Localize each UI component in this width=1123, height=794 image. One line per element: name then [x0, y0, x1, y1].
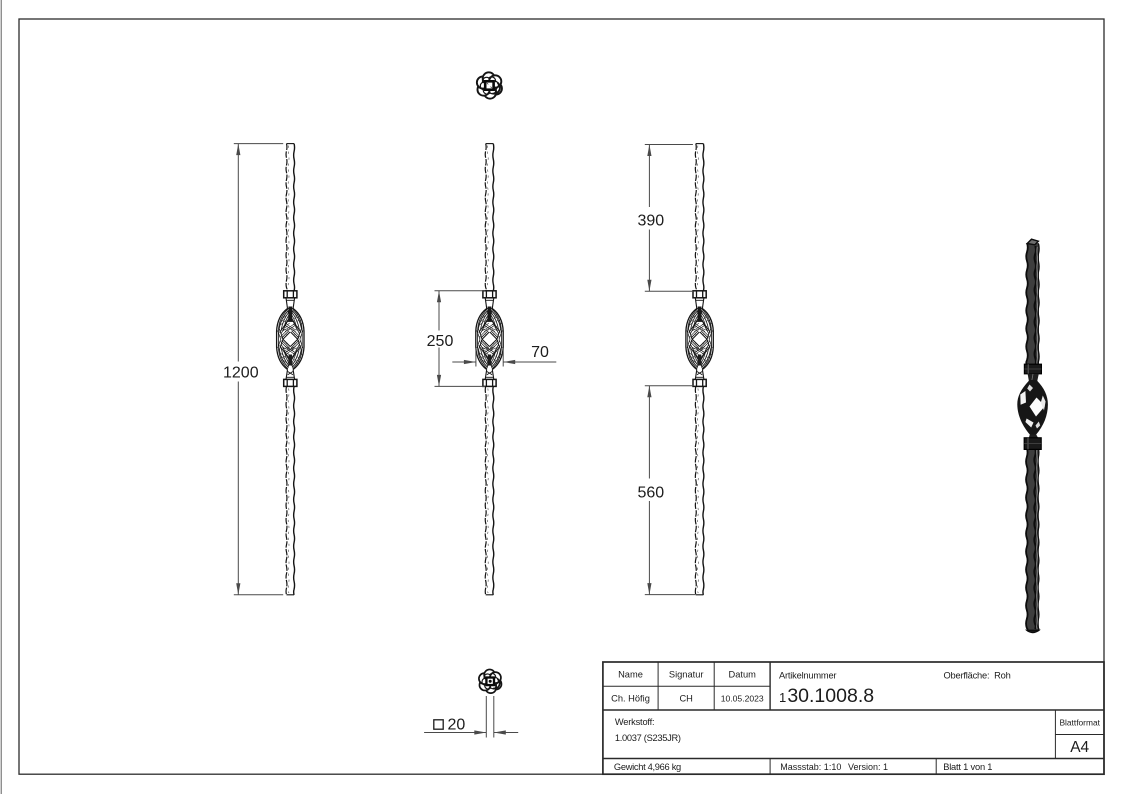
svg-text:10.05.2023: 10.05.2023: [721, 694, 764, 704]
svg-text:Blattformat: Blattformat: [1059, 718, 1100, 728]
svg-text:A4: A4: [1070, 739, 1089, 756]
svg-text:Blatt 1 von 1: Blatt 1 von 1: [943, 762, 992, 772]
svg-text:1.0037 (S235JR): 1.0037 (S235JR): [615, 733, 681, 743]
svg-text:Name: Name: [618, 670, 643, 680]
svg-text:Version: 1: Version: 1: [848, 762, 888, 772]
svg-text:Ch. Höfig: Ch. Höfig: [611, 694, 650, 704]
svg-text:Werkstoff:: Werkstoff:: [615, 717, 655, 727]
svg-text:20: 20: [448, 716, 466, 733]
svg-text:1200: 1200: [223, 365, 259, 382]
svg-text:Gewicht 4,966 kg: Gewicht 4,966 kg: [614, 762, 681, 772]
svg-text:390: 390: [637, 212, 664, 229]
svg-text:Massstab: 1:10: Massstab: 1:10: [780, 762, 841, 772]
svg-text:560: 560: [637, 484, 664, 501]
svg-text:CH: CH: [679, 694, 692, 704]
svg-text:70: 70: [531, 344, 549, 361]
svg-text:Datum: Datum: [729, 670, 757, 680]
svg-text:1 30.1008.8: 1 30.1008.8: [779, 685, 874, 707]
svg-text:Signatur: Signatur: [669, 670, 704, 680]
svg-text:Oberfläche: Roh: Oberfläche: Roh: [944, 670, 1011, 680]
svg-text:Artikelnummer: Artikelnummer: [779, 670, 836, 680]
svg-text:250: 250: [427, 333, 454, 350]
